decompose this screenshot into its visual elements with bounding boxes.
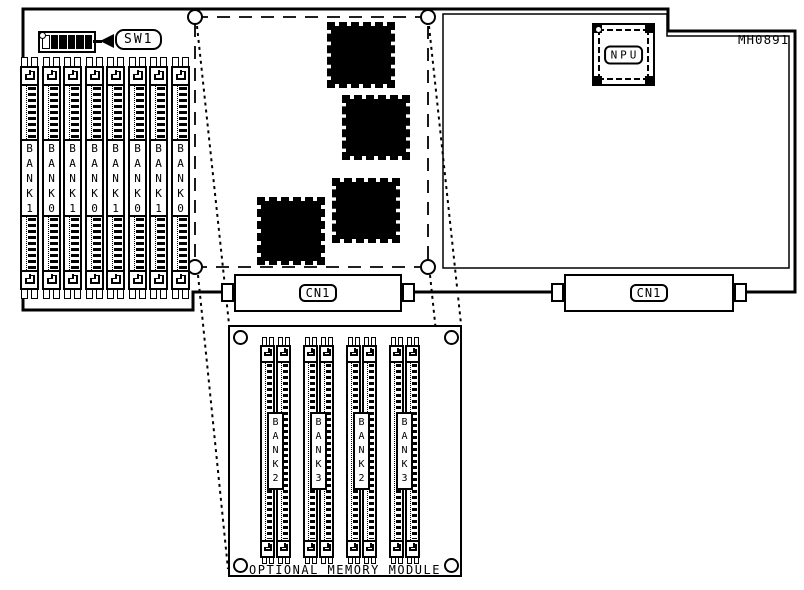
simm-tab xyxy=(86,57,93,66)
simm-key-notch-icon xyxy=(130,68,145,86)
simm-tab xyxy=(21,290,28,299)
simm-tab xyxy=(172,290,179,299)
simm-tab xyxy=(139,57,146,66)
simm-bottom-tabs xyxy=(171,290,190,299)
simm-tab xyxy=(355,337,360,345)
simm-bottom-tabs xyxy=(128,290,147,299)
simm-contact-strip xyxy=(44,86,59,139)
simm-tab xyxy=(53,57,60,66)
mounting-hole-icon xyxy=(233,330,248,345)
simm-top-tabs xyxy=(20,57,39,66)
simm-tab xyxy=(129,290,136,299)
notch-hook-icon xyxy=(47,275,57,284)
projection-line-top-right xyxy=(429,26,461,324)
simm-key-notch-icon xyxy=(22,270,37,288)
bank-label: BANK0 xyxy=(87,139,102,217)
dip-switch-cell xyxy=(85,35,93,49)
simm-rail xyxy=(391,363,395,540)
bank-label: BANK0 xyxy=(44,139,59,217)
simm-slot: BANK0 xyxy=(171,57,190,299)
simm-contact-strip xyxy=(173,217,188,270)
simm-key-notch-icon xyxy=(22,68,37,86)
npu-pin1-dot-icon xyxy=(595,26,602,33)
simm-pins xyxy=(179,218,187,269)
simm-tab xyxy=(43,290,50,299)
notch-hook-icon xyxy=(154,71,164,80)
simm-tab xyxy=(96,57,103,66)
bank-label: BANK0 xyxy=(130,139,145,217)
simm-key-notch-icon xyxy=(151,68,166,86)
simm-pins xyxy=(28,87,36,138)
simm-key-notch-icon xyxy=(87,68,102,86)
simm-rail xyxy=(44,217,49,270)
simm-key-notch-icon xyxy=(173,68,188,86)
simm-tab xyxy=(139,290,146,299)
simm-slot: BANK1 xyxy=(106,57,125,299)
connector-tab xyxy=(734,283,747,302)
qfp-chip-icon xyxy=(342,95,410,160)
projection-line-bottom-left xyxy=(198,275,228,569)
simm-key-notch-icon xyxy=(278,347,289,363)
simm-pins xyxy=(71,218,79,269)
simm-key-notch-icon xyxy=(348,347,359,363)
notch-hook-icon xyxy=(350,544,358,551)
simm-contact-strip xyxy=(108,217,123,270)
simm-body: BANK0 xyxy=(85,66,104,290)
notch-hook-icon xyxy=(366,349,374,356)
notch-hook-icon xyxy=(366,544,374,551)
simm-tab xyxy=(305,337,310,345)
simm-key-notch-icon xyxy=(364,347,375,363)
simm-top-tabs xyxy=(85,57,104,66)
simm-tab xyxy=(21,57,28,66)
simm-rail xyxy=(130,86,135,139)
simm-key-notch-icon xyxy=(305,540,316,556)
notch-hook-icon xyxy=(111,275,121,284)
simm-rail xyxy=(65,86,70,139)
notch-hook-icon xyxy=(111,71,121,80)
simm-contact-strip xyxy=(151,86,166,139)
bank-label: BANK1 xyxy=(65,139,80,217)
connector-label: CN1 xyxy=(630,284,669,302)
simm-rail xyxy=(151,86,156,139)
simm-tab xyxy=(150,290,157,299)
simm-key-notch-icon xyxy=(364,540,375,556)
simm-top-tabs xyxy=(362,337,377,345)
simm-key-notch-icon xyxy=(44,68,59,86)
callout-arrow-icon xyxy=(100,34,114,48)
simm-pins xyxy=(71,87,79,138)
simm-tab xyxy=(160,57,167,66)
notch-hook-icon xyxy=(280,349,288,356)
connector-cn1-left: CN1 xyxy=(234,274,402,312)
simm-pins xyxy=(114,87,122,138)
notch-hook-icon xyxy=(409,544,417,551)
simm-tab xyxy=(321,337,326,345)
simm-slot: BANK0 xyxy=(85,57,104,299)
simm-tab xyxy=(64,290,71,299)
simm-tab xyxy=(160,290,167,299)
notch-hook-icon xyxy=(393,544,401,551)
simm-key-notch-icon xyxy=(278,540,289,556)
simm-bottom-tabs xyxy=(85,290,104,299)
simm-key-notch-icon xyxy=(321,347,332,363)
notch-hook-icon xyxy=(25,71,35,80)
notch-hook-icon xyxy=(280,544,288,551)
simm-rail xyxy=(108,217,113,270)
bank-label: BANK2 xyxy=(353,412,370,490)
simm-pins xyxy=(28,218,36,269)
notch-hook-icon xyxy=(176,71,186,80)
notch-hook-icon xyxy=(154,275,164,284)
simm-contact-strip xyxy=(65,86,80,139)
simm-pins xyxy=(157,218,165,269)
simm-key-notch-icon xyxy=(65,68,80,86)
dip-switch-cell xyxy=(51,35,59,49)
simm-tab xyxy=(150,57,157,66)
simm-rail xyxy=(130,217,135,270)
npu-corner-icon xyxy=(645,76,653,84)
qfp-chip-icon xyxy=(327,22,395,88)
simm-contact-strip xyxy=(44,217,59,270)
notch-hook-icon xyxy=(350,349,358,356)
notch-hook-icon xyxy=(25,275,35,284)
simm-tab xyxy=(269,337,274,345)
connector-tab xyxy=(551,283,564,302)
notch-hook-icon xyxy=(323,349,331,356)
simm-tab xyxy=(31,57,38,66)
qfp-chip-icon xyxy=(332,178,400,243)
simm-contact-strip xyxy=(87,86,102,139)
simm-slot: BANK1 xyxy=(63,57,82,299)
simm-contact-strip xyxy=(22,86,37,139)
simm-top-tabs xyxy=(171,57,190,66)
simm-top-tabs xyxy=(106,57,125,66)
simm-top-tabs xyxy=(389,337,404,345)
simm-tab xyxy=(391,337,396,345)
bank-label: BANK1 xyxy=(108,139,123,217)
simm-body: BANK0 xyxy=(42,66,61,290)
simm-tab xyxy=(64,57,71,66)
simm-pins xyxy=(93,87,101,138)
pcb-diagram: MH0891 SW1 BANK1 BANK0 xyxy=(0,0,804,590)
board-part-number: MH0891 xyxy=(738,32,789,47)
simm-top-tabs xyxy=(319,337,334,345)
notch-hook-icon xyxy=(264,544,272,551)
simm-tab xyxy=(43,57,50,66)
simm-top-tabs xyxy=(303,337,318,345)
mounting-hole-icon xyxy=(444,330,459,345)
simm-top-tabs xyxy=(149,57,168,66)
simm-key-notch-icon xyxy=(65,270,80,288)
simm-tab xyxy=(117,290,124,299)
simm-body: BANK1 xyxy=(106,66,125,290)
simm-key-notch-icon xyxy=(173,270,188,288)
dip-switch-cell xyxy=(68,35,76,49)
simm-body: BANK1 xyxy=(149,66,168,290)
simm-top-tabs xyxy=(42,57,61,66)
npu-label: NPU xyxy=(604,45,644,64)
simm-rail xyxy=(22,86,27,139)
simm-tab xyxy=(328,337,333,345)
notch-hook-icon xyxy=(307,349,315,356)
simm-bottom-tabs xyxy=(149,290,168,299)
simm-tab xyxy=(407,337,412,345)
simm-key-notch-icon xyxy=(407,540,418,556)
simm-pins xyxy=(157,87,165,138)
simm-tab xyxy=(312,337,317,345)
simm-key-notch-icon xyxy=(87,270,102,288)
simm-pins xyxy=(114,218,122,269)
simm-key-notch-icon xyxy=(130,270,145,288)
simm-tab xyxy=(74,57,81,66)
module-title: OPTIONAL MEMORY MODULE xyxy=(228,563,462,577)
simm-slot: BANK1 xyxy=(149,57,168,299)
simm-pins xyxy=(50,87,58,138)
notch-hook-icon xyxy=(90,275,100,284)
dip-switch-pin1-dot-icon xyxy=(39,32,46,39)
npu-socket: NPU xyxy=(592,23,655,86)
mounting-hole-icon xyxy=(188,10,202,24)
simm-key-notch-icon xyxy=(391,540,402,556)
simm-top-tabs xyxy=(405,337,420,345)
simm-body: BANK1 xyxy=(63,66,82,290)
npu-corner-icon xyxy=(594,76,602,84)
mounting-hole-icon xyxy=(188,260,202,274)
mounting-hole-icon xyxy=(421,260,435,274)
notch-hook-icon xyxy=(409,349,417,356)
simm-body: BANK1 xyxy=(20,66,39,290)
notch-hook-icon xyxy=(264,349,272,356)
simm-contact-strip xyxy=(22,217,37,270)
simm-key-notch-icon xyxy=(262,540,273,556)
simm-rail xyxy=(173,217,178,270)
simm-rail xyxy=(108,86,113,139)
simm-rail xyxy=(305,363,309,540)
simm-bottom-tabs xyxy=(20,290,39,299)
simm-pins xyxy=(179,87,187,138)
simm-tab xyxy=(96,290,103,299)
simm-body: BANK0 xyxy=(171,66,190,290)
notch-hook-icon xyxy=(68,71,78,80)
bank-label: BANK2 xyxy=(267,412,284,490)
simm-key-notch-icon xyxy=(108,68,123,86)
notch-hook-icon xyxy=(133,71,143,80)
simm-top-tabs xyxy=(260,337,275,345)
npu-corner-icon xyxy=(645,25,653,33)
simm-tab xyxy=(364,337,369,345)
bank-label: BANK1 xyxy=(22,139,37,217)
simm-bottom-tabs xyxy=(106,290,125,299)
simm-tab xyxy=(172,57,179,66)
simm-tab xyxy=(398,337,403,345)
simm-contact-strip xyxy=(65,217,80,270)
simm-top-tabs xyxy=(346,337,361,345)
simm-tab xyxy=(182,290,189,299)
simm-tab xyxy=(53,290,60,299)
simm-rail xyxy=(44,86,49,139)
simm-tab xyxy=(129,57,136,66)
sw1-callout-label: SW1 xyxy=(115,29,162,50)
simm-tab xyxy=(262,337,267,345)
simm-slot: BANK0 xyxy=(42,57,61,299)
simm-pins xyxy=(93,218,101,269)
simm-rail xyxy=(262,363,266,540)
simm-tab xyxy=(414,337,419,345)
simm-key-notch-icon xyxy=(321,540,332,556)
simm-tab xyxy=(182,57,189,66)
simm-contact-strip xyxy=(151,217,166,270)
simm-tab xyxy=(107,57,114,66)
simm-bottom-tabs xyxy=(63,290,82,299)
simm-key-notch-icon xyxy=(151,270,166,288)
simm-tab xyxy=(285,337,290,345)
notch-hook-icon xyxy=(176,275,186,284)
connector-tab xyxy=(221,283,234,302)
simm-tab xyxy=(74,290,81,299)
bank-label: BANK1 xyxy=(151,139,166,217)
notch-hook-icon xyxy=(307,544,315,551)
connector-tab xyxy=(402,283,415,302)
notch-hook-icon xyxy=(47,71,57,80)
dip-switch-sw1 xyxy=(38,31,96,53)
simm-contact-strip xyxy=(87,217,102,270)
simm-key-notch-icon xyxy=(262,347,273,363)
connector-cn1-right: CN1 xyxy=(564,274,734,312)
simm-key-notch-icon xyxy=(348,540,359,556)
notch-hook-icon xyxy=(323,544,331,551)
bank-label: BANK3 xyxy=(396,412,413,490)
simm-rail xyxy=(151,217,156,270)
notch-hook-icon xyxy=(133,275,143,284)
simm-key-notch-icon xyxy=(305,347,316,363)
simm-rail xyxy=(87,86,92,139)
simm-rail xyxy=(348,363,352,540)
simm-key-notch-icon xyxy=(407,347,418,363)
dip-switch-cell xyxy=(59,35,67,49)
simm-contact-strip xyxy=(108,86,123,139)
simm-contact-strip xyxy=(130,86,145,139)
notch-hook-icon xyxy=(68,275,78,284)
notch-hook-icon xyxy=(90,71,100,80)
simm-contact-strip xyxy=(173,86,188,139)
simm-slot: BANK0 xyxy=(128,57,147,299)
simm-key-notch-icon xyxy=(44,270,59,288)
simm-tab xyxy=(117,57,124,66)
bank-label: BANK0 xyxy=(173,139,188,217)
simm-rail xyxy=(87,217,92,270)
simm-top-tabs xyxy=(276,337,291,345)
simm-rail xyxy=(173,86,178,139)
qfp-chip-icon xyxy=(257,197,325,265)
simm-rail xyxy=(65,217,70,270)
simm-slot: BANK1 xyxy=(20,57,39,299)
notch-hook-icon xyxy=(393,349,401,356)
simm-key-notch-icon xyxy=(108,270,123,288)
simm-tab xyxy=(348,337,353,345)
simm-key-notch-icon xyxy=(391,347,402,363)
simm-pins xyxy=(136,87,144,138)
simm-bottom-tabs xyxy=(42,290,61,299)
projection-line-top-left xyxy=(197,26,229,324)
simm-tab xyxy=(107,290,114,299)
simm-tab xyxy=(371,337,376,345)
simm-contact-strip xyxy=(130,217,145,270)
simm-pins xyxy=(136,218,144,269)
simm-rail xyxy=(22,217,27,270)
simm-tab xyxy=(31,290,38,299)
simm-pins xyxy=(50,218,58,269)
simm-tab xyxy=(86,290,93,299)
connector-label: CN1 xyxy=(299,284,338,302)
simm-tab xyxy=(278,337,283,345)
bank-label: BANK3 xyxy=(310,412,327,490)
mounting-hole-icon xyxy=(421,10,435,24)
simm-top-tabs xyxy=(128,57,147,66)
simm-body: BANK0 xyxy=(128,66,147,290)
dip-switch-cell xyxy=(76,35,84,49)
simm-top-tabs xyxy=(63,57,82,66)
